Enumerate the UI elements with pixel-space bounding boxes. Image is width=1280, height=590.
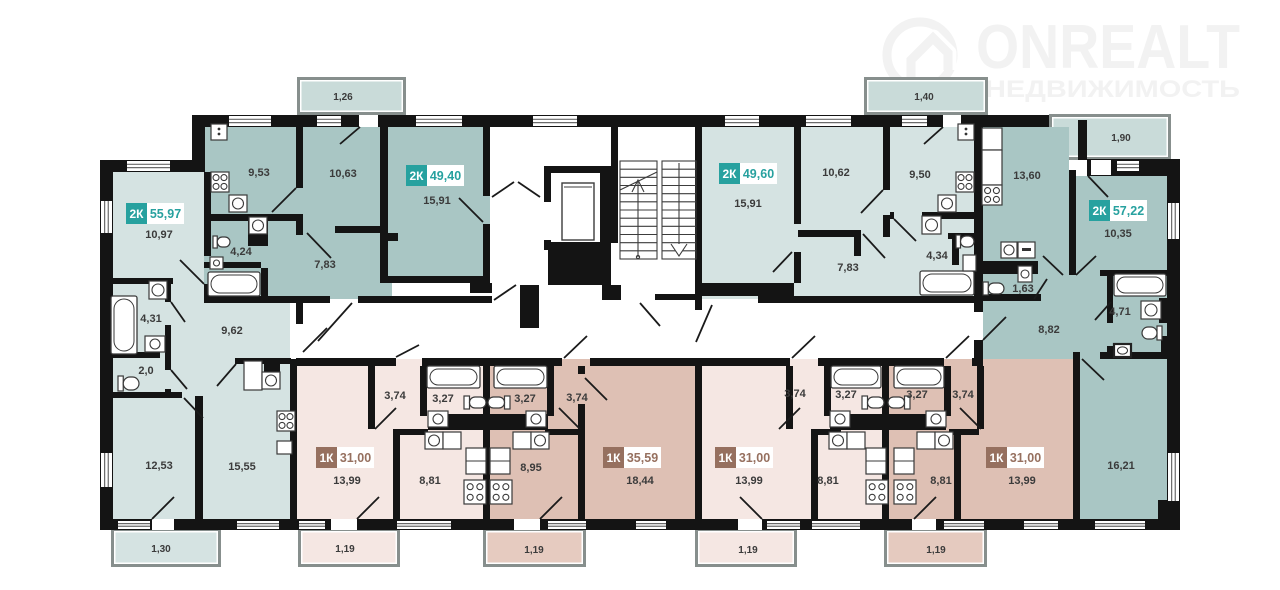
svg-text:31,00: 31,00	[340, 451, 371, 465]
svg-text:1,19: 1,19	[738, 545, 758, 556]
svg-text:31,00: 31,00	[1010, 451, 1041, 465]
svg-text:2К: 2К	[130, 207, 145, 221]
svg-text:1К: 1К	[719, 451, 734, 465]
svg-text:3,74: 3,74	[784, 388, 806, 400]
svg-text:16,21: 16,21	[1107, 460, 1135, 472]
svg-text:15,55: 15,55	[228, 461, 256, 473]
svg-text:31,00: 31,00	[739, 451, 770, 465]
svg-text:49,60: 49,60	[743, 167, 774, 181]
svg-text:2К: 2К	[410, 169, 425, 183]
svg-text:ONREALT: ONREALT	[976, 13, 1240, 82]
svg-text:8,81: 8,81	[930, 475, 951, 487]
svg-text:3,27: 3,27	[906, 389, 927, 401]
svg-text:1,63: 1,63	[1012, 283, 1033, 295]
svg-text:15,91: 15,91	[423, 195, 451, 207]
svg-text:35,59: 35,59	[627, 451, 658, 465]
svg-text:12,53: 12,53	[145, 460, 173, 472]
svg-text:13,99: 13,99	[1008, 475, 1036, 487]
svg-text:10,35: 10,35	[1104, 228, 1132, 240]
svg-text:3,27: 3,27	[432, 393, 453, 405]
svg-text:7,83: 7,83	[314, 259, 335, 271]
svg-text:13,99: 13,99	[333, 475, 361, 487]
svg-text:13,60: 13,60	[1013, 170, 1041, 182]
svg-text:1К: 1К	[320, 451, 335, 465]
svg-text:1К: 1К	[607, 451, 622, 465]
svg-text:8,95: 8,95	[520, 462, 541, 474]
svg-text:1,19: 1,19	[926, 545, 946, 556]
svg-text:3,74: 3,74	[566, 392, 588, 404]
svg-text:4,71: 4,71	[1109, 306, 1130, 318]
svg-text:1,30: 1,30	[151, 544, 171, 555]
svg-text:13,99: 13,99	[735, 475, 763, 487]
svg-text:7,83: 7,83	[837, 262, 858, 274]
svg-text:9,50: 9,50	[909, 169, 930, 181]
svg-text:15,91: 15,91	[734, 198, 762, 210]
svg-text:8,81: 8,81	[419, 475, 440, 487]
svg-text:57,22: 57,22	[1113, 204, 1144, 218]
svg-text:9,62: 9,62	[221, 325, 242, 337]
svg-text:3,27: 3,27	[835, 389, 856, 401]
svg-text:10,63: 10,63	[329, 168, 357, 180]
svg-text:1К: 1К	[990, 451, 1005, 465]
svg-text:НЕДВИЖИМОСТЬ: НЕДВИЖИМОСТЬ	[985, 76, 1240, 103]
svg-text:2К: 2К	[723, 167, 738, 181]
svg-text:1,19: 1,19	[524, 545, 544, 556]
svg-text:10,97: 10,97	[145, 229, 173, 241]
svg-text:3,74: 3,74	[384, 390, 406, 402]
svg-text:9,53: 9,53	[248, 167, 269, 179]
svg-text:8,81: 8,81	[817, 475, 838, 487]
svg-text:1,19: 1,19	[335, 544, 355, 555]
svg-text:18,44: 18,44	[626, 475, 654, 487]
svg-text:1,26: 1,26	[333, 92, 353, 103]
svg-text:2,0: 2,0	[138, 365, 153, 377]
svg-text:55,97: 55,97	[150, 207, 181, 221]
svg-text:10,62: 10,62	[822, 167, 850, 179]
svg-text:4,34: 4,34	[926, 250, 948, 262]
svg-text:4,31: 4,31	[140, 313, 161, 325]
svg-text:8,82: 8,82	[1038, 324, 1059, 336]
svg-text:2К: 2К	[1093, 204, 1108, 218]
svg-text:3,74: 3,74	[952, 389, 974, 401]
svg-text:1,90: 1,90	[1111, 133, 1131, 144]
svg-text:49,40: 49,40	[430, 169, 461, 183]
svg-text:3,27: 3,27	[514, 393, 535, 405]
svg-text:1,40: 1,40	[914, 92, 934, 103]
svg-text:4,24: 4,24	[230, 246, 252, 258]
